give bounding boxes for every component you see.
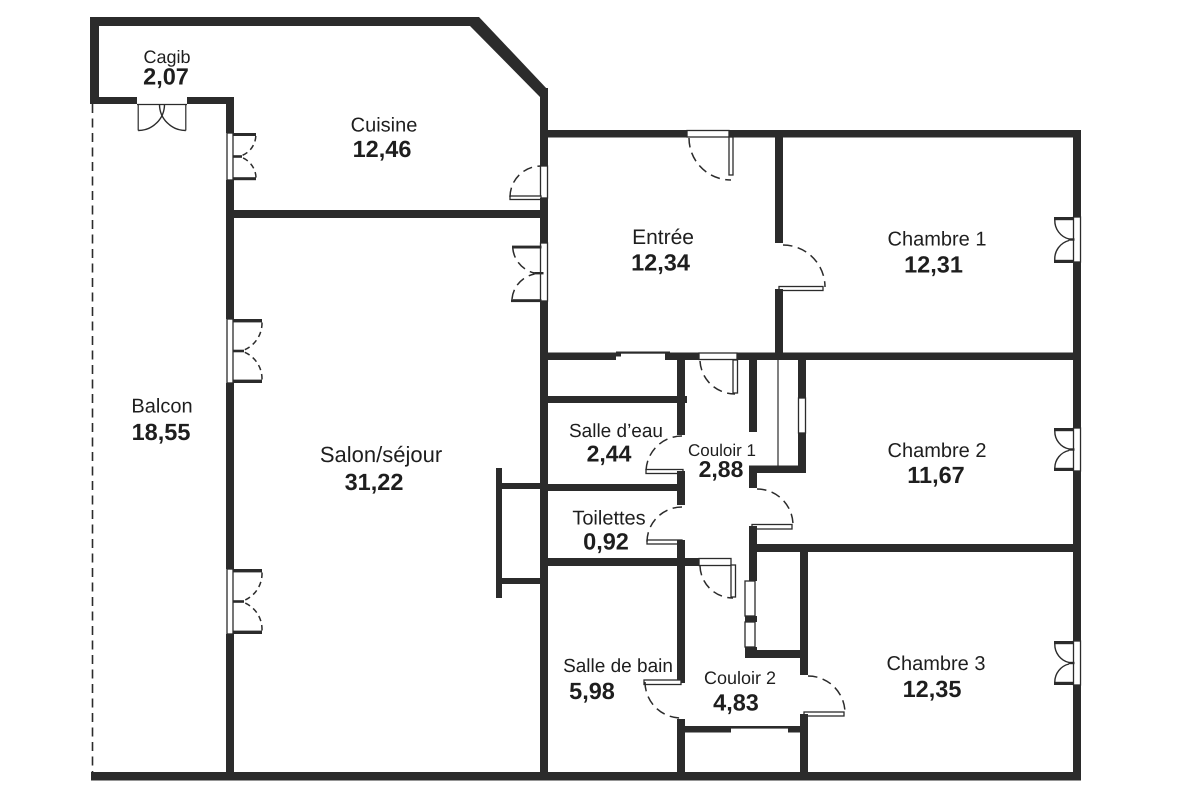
svg-text:11,67: 11,67 bbox=[907, 462, 965, 488]
svg-text:31,22: 31,22 bbox=[345, 469, 404, 495]
svg-text:Balcon: Balcon bbox=[131, 396, 192, 418]
svg-text:0,92: 0,92 bbox=[583, 529, 629, 555]
svg-text:12,31: 12,31 bbox=[904, 251, 963, 277]
svg-text:Chambre 3: Chambre 3 bbox=[887, 653, 986, 675]
svg-text:12,34: 12,34 bbox=[631, 250, 690, 276]
svg-text:5,98: 5,98 bbox=[569, 678, 615, 704]
svg-text:Chambre 2: Chambre 2 bbox=[888, 440, 987, 462]
svg-text:12,35: 12,35 bbox=[903, 676, 962, 702]
svg-text:2,44: 2,44 bbox=[587, 441, 632, 467]
svg-text:Salle d’eau: Salle d’eau bbox=[569, 421, 663, 442]
svg-text:Couloir 2: Couloir 2 bbox=[704, 668, 776, 688]
svg-text:2,88: 2,88 bbox=[699, 456, 744, 482]
svg-text:18,55: 18,55 bbox=[132, 419, 191, 445]
svg-text:Chambre 1: Chambre 1 bbox=[888, 229, 987, 251]
svg-text:Cuisine: Cuisine bbox=[351, 115, 418, 137]
svg-text:Entrée: Entrée bbox=[632, 226, 694, 249]
svg-text:2,07: 2,07 bbox=[143, 64, 189, 90]
svg-text:Salon/séjour: Salon/séjour bbox=[320, 442, 442, 467]
svg-text:4,83: 4,83 bbox=[713, 690, 759, 716]
svg-text:12,46: 12,46 bbox=[353, 136, 412, 162]
svg-text:Toilettes: Toilettes bbox=[572, 507, 645, 529]
svg-text:Salle de bain: Salle de bain bbox=[563, 656, 673, 677]
